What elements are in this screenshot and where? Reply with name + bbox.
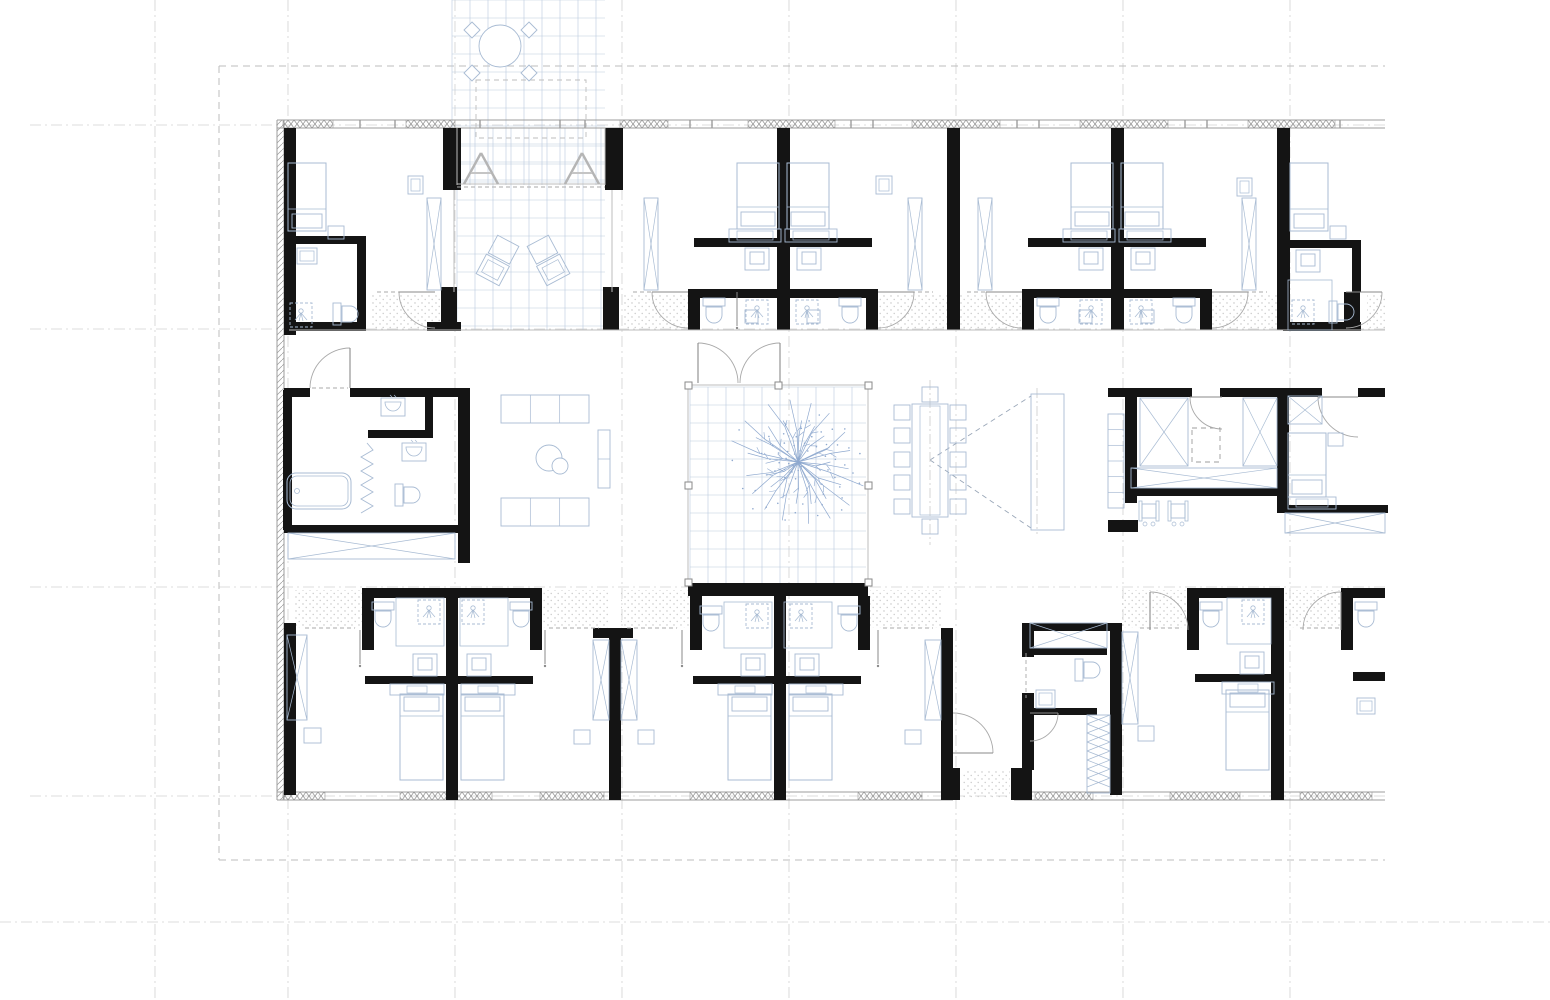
wall xyxy=(609,628,621,800)
wall xyxy=(1022,289,1034,330)
wheelchair-symbol xyxy=(1139,501,1159,526)
door-arc-icon xyxy=(1190,397,1222,429)
toilet-symbol xyxy=(1200,602,1222,627)
shower-symbol xyxy=(746,300,768,324)
doormat-stipple xyxy=(623,294,688,330)
doormat-stipple xyxy=(1283,590,1341,628)
wardrobe-symbol xyxy=(621,640,637,720)
wall xyxy=(1277,388,1289,513)
door-arc-icon xyxy=(740,343,780,383)
window-sill-hatch xyxy=(1300,792,1372,800)
door-pivot xyxy=(544,665,546,667)
toilet-symbol xyxy=(1075,659,1100,681)
shower-symbol xyxy=(790,604,812,628)
bed-symbol xyxy=(789,694,832,780)
toilet-symbol xyxy=(1173,298,1195,323)
wardrobe-symbol xyxy=(925,640,941,720)
wall xyxy=(1358,388,1385,397)
wall xyxy=(441,287,457,330)
sofa-symbol xyxy=(501,395,589,423)
column-symbol xyxy=(685,382,692,389)
cabinet-symbol xyxy=(574,730,590,744)
shower-symbol xyxy=(1242,600,1264,624)
bed-bench-symbol xyxy=(729,229,781,242)
bed-symbol xyxy=(1121,163,1163,229)
shower-symbol xyxy=(462,600,484,624)
dining-chair-symbol xyxy=(894,405,910,420)
bed-symbol xyxy=(400,694,443,780)
shelving-symbol xyxy=(1108,414,1124,508)
wall xyxy=(1200,289,1212,330)
wall xyxy=(365,676,533,684)
cabinet-symbol xyxy=(1357,698,1375,714)
wall xyxy=(1022,289,1212,298)
desk-symbol xyxy=(1222,682,1274,694)
wall xyxy=(866,289,878,330)
armchair-symbol xyxy=(476,235,520,286)
door-arc-icon xyxy=(1030,713,1058,741)
wall xyxy=(941,628,953,775)
column-symbol xyxy=(685,579,692,586)
shower-tray-symbol xyxy=(724,602,772,648)
window-sill-hatch xyxy=(858,792,922,800)
wall xyxy=(688,289,700,330)
door-pivot xyxy=(681,665,683,667)
patio-chair-symbol xyxy=(521,22,537,38)
column-symbol xyxy=(775,382,782,389)
toilet-symbol xyxy=(839,298,861,323)
trestle-icon xyxy=(565,153,599,184)
dining-chair-symbol xyxy=(894,452,910,467)
floorplan-canvas xyxy=(0,0,1550,1000)
desk-chair-symbol xyxy=(797,248,821,270)
desk-chair-symbol xyxy=(467,654,491,676)
dining-chair-symbol xyxy=(894,499,910,514)
cabinet-symbol xyxy=(638,730,654,744)
wall xyxy=(1341,588,1353,650)
window-sill-hatch xyxy=(912,120,1000,128)
window-sill-hatch xyxy=(1080,120,1168,128)
wall xyxy=(688,583,868,596)
door-pivot xyxy=(877,665,879,667)
desk-chair-symbol xyxy=(1240,652,1264,674)
sofa-symbol xyxy=(501,498,589,526)
wall xyxy=(446,598,458,800)
bed-symbol xyxy=(1071,163,1113,229)
wall xyxy=(284,388,310,397)
window-sill-hatch xyxy=(406,120,455,128)
toilet-symbol xyxy=(1355,602,1377,627)
wall xyxy=(1027,648,1107,655)
washbasin-symbol xyxy=(402,440,426,461)
dining-chair-symbol xyxy=(950,428,966,443)
dining-chair-symbol xyxy=(950,405,966,420)
desk-chair-symbol xyxy=(413,654,437,676)
partition-lines xyxy=(289,128,1385,583)
column-symbol xyxy=(865,482,872,489)
window-sill-hatch xyxy=(620,120,668,128)
bed-symbol xyxy=(461,694,504,780)
wall xyxy=(350,388,470,397)
toilet-symbol xyxy=(700,606,722,631)
wall xyxy=(1187,588,1283,598)
ladder-symbol xyxy=(1087,715,1110,793)
wall xyxy=(693,676,861,684)
wardrobe-symbol xyxy=(644,198,658,290)
door-arc-icon xyxy=(953,713,993,753)
shower-tray-symbol xyxy=(784,602,832,648)
bed-symbol xyxy=(728,694,771,780)
shelf-symbol xyxy=(598,430,610,488)
bed-bench-symbol xyxy=(1119,229,1171,242)
bathtub-symbol xyxy=(287,473,351,509)
cabinet-symbol xyxy=(1237,178,1252,196)
desk-symbol xyxy=(789,684,843,695)
dining-chair-symbol xyxy=(894,475,910,490)
dashed-outline xyxy=(476,80,586,138)
wall xyxy=(1022,693,1034,770)
cabinet-symbol xyxy=(905,730,921,744)
desk-symbol xyxy=(390,684,444,695)
column-symbol xyxy=(865,579,872,586)
wall xyxy=(694,238,872,247)
wall xyxy=(357,236,366,330)
sideboard-symbol xyxy=(1031,394,1064,530)
round-table-symbol xyxy=(552,458,568,474)
window-sill-hatch xyxy=(1170,792,1240,800)
wall xyxy=(1187,588,1199,650)
doormat-stipple xyxy=(878,294,947,330)
shower-curtain-symbol xyxy=(361,443,373,513)
desk-symbol xyxy=(461,684,515,695)
wall xyxy=(1027,708,1097,715)
wall xyxy=(362,588,374,650)
bed-bench-symbol xyxy=(785,229,837,242)
shower-symbol xyxy=(418,600,440,624)
bed-symbol xyxy=(737,163,779,229)
wall xyxy=(284,236,366,244)
wall xyxy=(1011,768,1032,800)
wall xyxy=(603,287,619,330)
window-sill-hatch xyxy=(283,120,333,128)
wall xyxy=(1353,672,1385,681)
window-sill-hatch xyxy=(1248,120,1335,128)
armchair-symbol xyxy=(526,235,570,286)
cabinet-symbol xyxy=(876,176,892,194)
wardrobe-symbol xyxy=(288,533,455,559)
bed-bench-symbol xyxy=(1063,229,1115,242)
wall xyxy=(368,430,432,438)
wall xyxy=(530,588,542,650)
wall xyxy=(1352,240,1361,292)
shower-symbol xyxy=(746,604,768,628)
wardrobe-symbol xyxy=(1140,398,1188,466)
wall xyxy=(362,588,542,598)
cabinet-symbol xyxy=(1138,726,1154,741)
wall xyxy=(283,390,292,530)
wall xyxy=(1130,488,1277,496)
wall xyxy=(1220,388,1277,397)
shower-symbol xyxy=(1292,300,1314,324)
wall xyxy=(1028,238,1206,247)
door-arc-icon xyxy=(1318,397,1358,437)
round-table-symbol xyxy=(479,25,521,67)
window-sill-hatch xyxy=(540,792,604,800)
toilet-symbol xyxy=(333,303,358,325)
wall xyxy=(443,128,461,190)
desk-symbol xyxy=(718,684,772,695)
toilet-symbol xyxy=(838,606,860,631)
wardrobe-symbol xyxy=(1131,468,1277,488)
tree-symbol xyxy=(732,400,864,524)
wardrobe-symbol xyxy=(427,198,441,290)
wall xyxy=(1108,388,1192,397)
wardrobe-symbol xyxy=(593,640,609,720)
grid-axes xyxy=(0,0,1550,1000)
dining-chair-symbol xyxy=(950,499,966,514)
desk-chair-symbol xyxy=(1296,250,1320,272)
floor-plan xyxy=(0,0,1550,1000)
wardrobe-symbol xyxy=(1122,632,1138,724)
cabinet-symbol xyxy=(1328,433,1343,446)
wall xyxy=(1108,520,1138,532)
door-pivot xyxy=(736,327,738,329)
toilet-symbol xyxy=(395,484,420,506)
projection-line xyxy=(930,460,1031,528)
door-arc-icon xyxy=(310,348,350,388)
projection-line xyxy=(930,396,1031,460)
dashed-outline xyxy=(1192,428,1220,462)
wall xyxy=(941,768,960,800)
door-pivot xyxy=(359,665,361,667)
washbasin-symbol xyxy=(381,395,405,416)
toilet-symbol xyxy=(1037,298,1059,323)
desk-chair-symbol xyxy=(795,654,819,676)
desk-chair-symbol xyxy=(745,248,769,270)
desk-chair-symbol xyxy=(741,654,765,676)
toilet-symbol xyxy=(510,602,532,627)
doormat-stipple xyxy=(1122,590,1187,628)
doormat-stipple xyxy=(959,294,1022,330)
shower-symbol xyxy=(1080,300,1102,324)
cabinet-symbol xyxy=(1330,226,1346,239)
wheelchair-symbol xyxy=(1168,501,1188,526)
cabinet-symbol xyxy=(297,248,317,264)
wall xyxy=(284,525,466,533)
column-symbol xyxy=(685,482,692,489)
dining-chair-symbol xyxy=(894,428,910,443)
shower-tray-symbol xyxy=(396,598,444,646)
doormat-stipple xyxy=(621,590,690,628)
doormat-stipple xyxy=(542,590,609,628)
wall xyxy=(1283,240,1361,248)
wall xyxy=(858,596,870,650)
wall xyxy=(1110,623,1122,795)
dining-chair-symbol xyxy=(950,452,966,467)
wardrobe-symbol xyxy=(978,198,992,290)
patio-chair-symbol xyxy=(464,22,480,38)
toilet-symbol xyxy=(703,298,725,323)
paving-grid xyxy=(690,387,866,583)
window-sill-hatch xyxy=(690,792,782,800)
doormat-stipple xyxy=(1212,294,1277,330)
wall xyxy=(458,525,470,563)
wardrobe-symbol xyxy=(1285,513,1385,533)
cabinet-symbol xyxy=(1036,690,1055,708)
window-sill-hatch xyxy=(748,120,835,128)
wall-hatch xyxy=(277,120,284,800)
wardrobe-symbol xyxy=(1242,198,1256,290)
wardrobe-symbol xyxy=(908,198,922,290)
wall xyxy=(690,596,702,650)
wardrobe-symbol xyxy=(1243,398,1277,466)
wall xyxy=(947,128,960,330)
wardrobe-symbol xyxy=(1288,396,1322,424)
column-symbol xyxy=(865,382,872,389)
patio-chair-symbol xyxy=(521,65,537,81)
desk-chair-symbol xyxy=(1079,248,1103,270)
bed-symbol xyxy=(1290,163,1328,231)
doormat-stipple xyxy=(870,590,941,628)
door-arc-icon xyxy=(698,343,738,383)
doormat-stipple xyxy=(962,770,1010,798)
toilet-symbol xyxy=(372,602,394,627)
wall xyxy=(458,397,470,533)
wall xyxy=(1195,674,1275,682)
wall xyxy=(605,128,623,190)
bed-symbol xyxy=(1288,433,1326,497)
bed-symbol xyxy=(787,163,829,229)
doormat-stipple xyxy=(295,590,362,628)
desk-chair-symbol xyxy=(1131,248,1155,270)
window-sill-hatch xyxy=(1035,792,1093,800)
patio-chair-symbol xyxy=(464,65,480,81)
wall xyxy=(688,289,878,298)
cabinet-symbol xyxy=(304,728,321,743)
cabinet-symbol xyxy=(408,176,423,194)
bed-symbol xyxy=(1226,690,1269,770)
